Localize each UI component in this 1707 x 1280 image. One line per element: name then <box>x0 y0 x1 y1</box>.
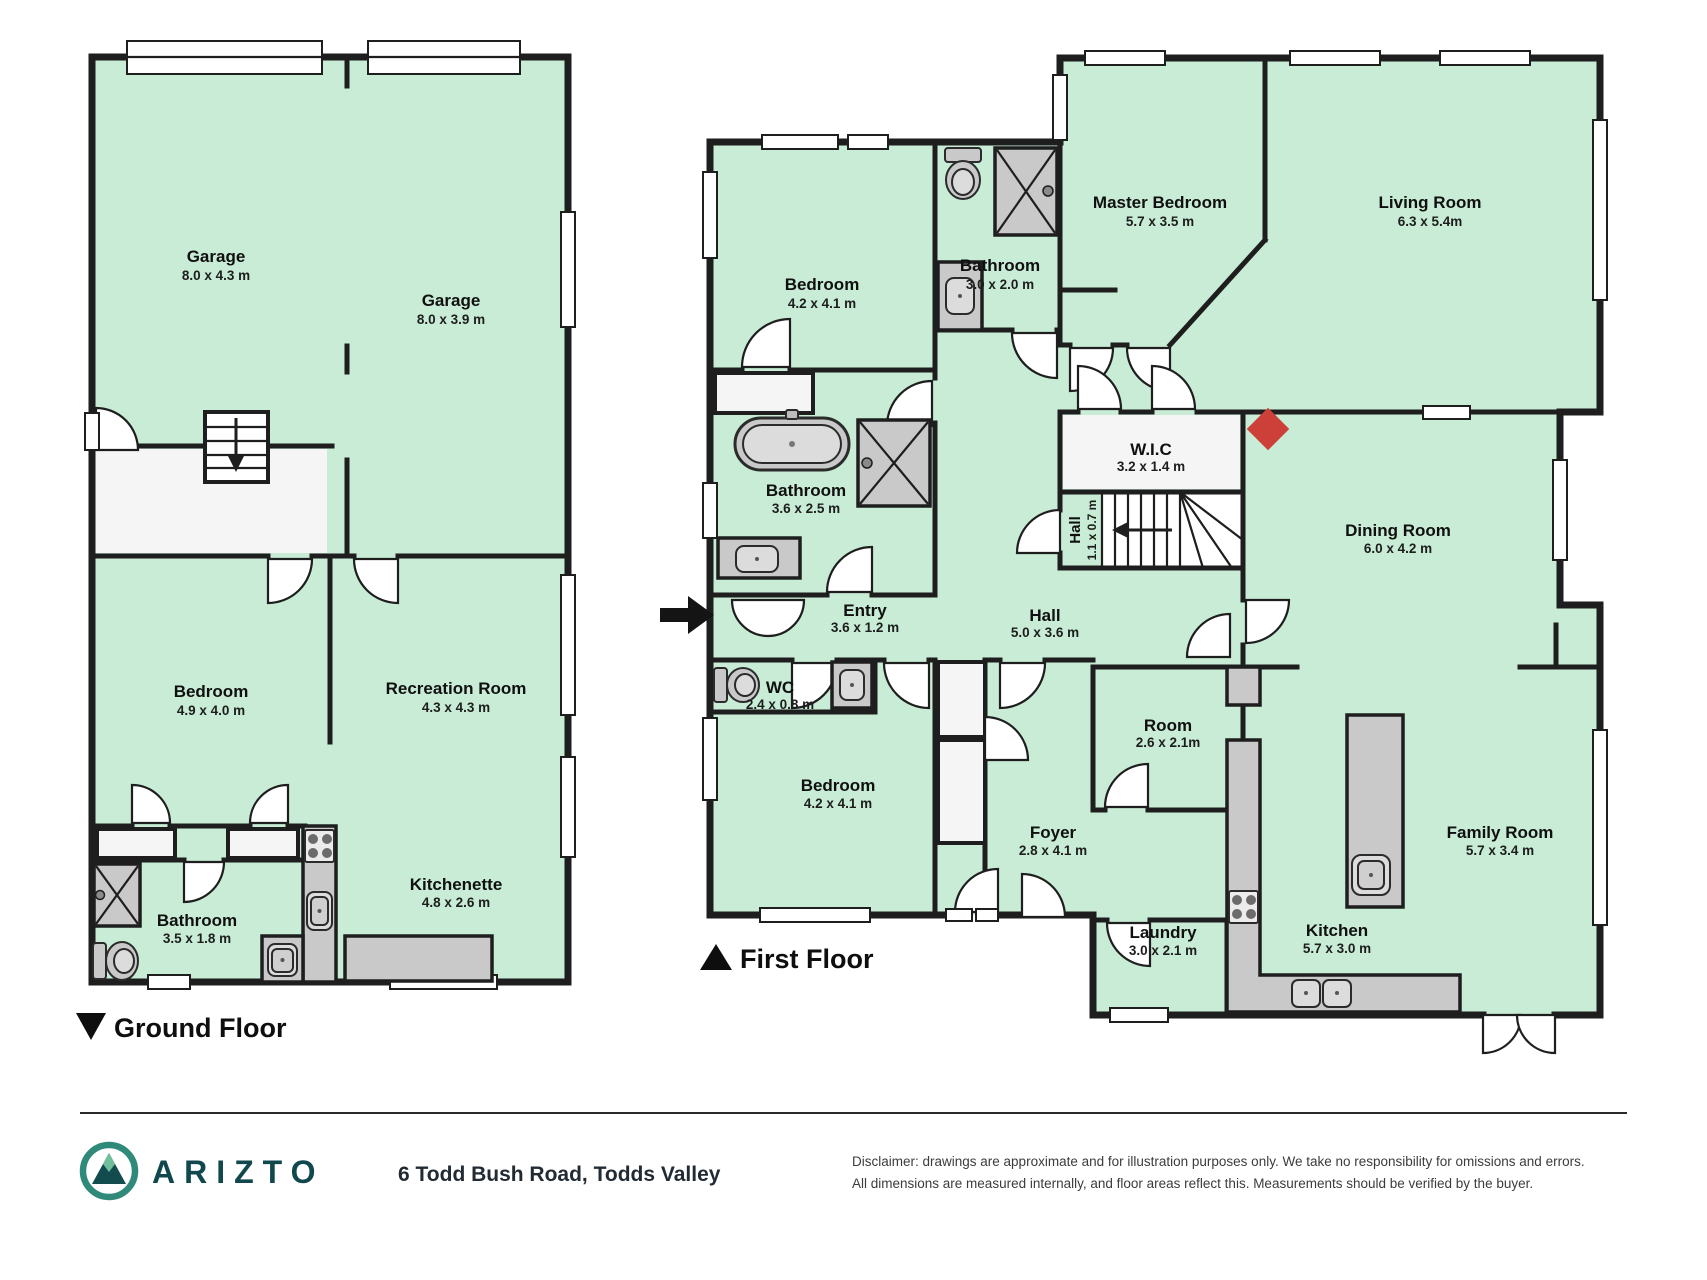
room-label-kitchenette: Kitchenette 4.8 x 2.6 m <box>410 875 503 910</box>
svg-text:Bedroom: Bedroom <box>174 682 249 701</box>
svg-text:1.1 x 0.7 m: 1.1 x 0.7 m <box>1085 500 1099 561</box>
svg-text:2.4 x 0.8 m: 2.4 x 0.8 m <box>746 697 814 712</box>
svg-text:Entry: Entry <box>843 601 887 620</box>
svg-text:Bathroom: Bathroom <box>157 911 237 930</box>
svg-text:Room: Room <box>1144 716 1192 735</box>
svg-text:Hall: Hall <box>1029 606 1060 625</box>
svg-text:W.I.C: W.I.C <box>1130 440 1172 459</box>
french-door-icon <box>1517 1015 1555 1053</box>
svg-text:3.0 x 2.1 m: 3.0 x 2.1 m <box>1129 943 1197 958</box>
svg-text:4.8 x 2.6 m: 4.8 x 2.6 m <box>422 895 490 910</box>
shower-icon <box>94 864 140 926</box>
closet <box>97 829 175 858</box>
floor-plan-page: Garage 8.0 x 4.3 m Garage 8.0 x 3.9 m Be… <box>0 0 1707 1280</box>
svg-text:Laundry: Laundry <box>1129 923 1197 942</box>
closet <box>715 373 813 413</box>
svg-text:3.0 x 2.0 m: 3.0 x 2.0 m <box>966 277 1034 292</box>
svg-text:Family Room: Family Room <box>1447 823 1554 842</box>
stairs-down-icon <box>205 412 268 482</box>
ground-floor-title: Ground Floor <box>76 1013 287 1043</box>
arizto-logo-icon <box>83 1145 135 1197</box>
svg-text:Bathroom: Bathroom <box>960 256 1040 275</box>
room-label-garage-1: Garage 8.0 x 4.3 m <box>182 247 250 283</box>
entry-arrow-icon <box>660 596 714 634</box>
svg-text:Hall: Hall <box>1067 516 1084 544</box>
brand-name: ARIZTO <box>152 1154 325 1190</box>
svg-text:Dining Room: Dining Room <box>1345 521 1451 540</box>
svg-text:4.2 x 4.1 m: 4.2 x 4.1 m <box>804 796 872 811</box>
footer: ARIZTO 6 Todd Bush Road, Todds Valley Di… <box>80 1113 1627 1197</box>
bathtub-icon <box>735 410 849 470</box>
sink-icon <box>832 662 872 708</box>
sink-icon <box>718 538 800 578</box>
svg-text:6.3 x 5.4m: 6.3 x 5.4m <box>1398 214 1463 229</box>
room-label-laundry: Laundry 3.0 x 2.1 m <box>1129 923 1197 958</box>
ground-floor-plan: Garage 8.0 x 4.3 m Garage 8.0 x 3.9 m Be… <box>76 41 575 1043</box>
svg-text:5.7 x 3.4 m: 5.7 x 3.4 m <box>1466 843 1534 858</box>
disclaimer-line-1: Disclaimer: drawings are approximate and… <box>852 1154 1585 1169</box>
toilet-icon <box>93 942 138 980</box>
svg-text:2.6 x 2.1m: 2.6 x 2.1m <box>1136 735 1201 750</box>
room-label-bathroom-main: Bathroom 3.6 x 2.5 m <box>766 481 846 516</box>
room-label-kitchen: Kitchen 5.7 x 3.0 m <box>1303 921 1371 956</box>
svg-text:4.2 x 4.1 m: 4.2 x 4.1 m <box>788 296 856 311</box>
svg-text:Garage: Garage <box>187 247 246 266</box>
french-door-icon <box>1483 1015 1521 1053</box>
svg-text:First Floor: First Floor <box>740 944 874 974</box>
room-label-bathroom-small: Bathroom 3.0 x 2.0 m <box>960 256 1040 292</box>
svg-text:8.0 x 4.3 m: 8.0 x 4.3 m <box>182 268 250 283</box>
svg-text:4.3 x 4.3 m: 4.3 x 4.3 m <box>422 700 490 715</box>
room-label-room: Room 2.6 x 2.1m <box>1136 716 1201 750</box>
svg-text:WC: WC <box>766 678 794 697</box>
disclaimer-line-2: All dimensions are measured internally, … <box>852 1176 1533 1191</box>
svg-text:5.7 x 3.5 m: 5.7 x 3.5 m <box>1126 214 1194 229</box>
svg-text:Foyer: Foyer <box>1030 823 1077 842</box>
stove-icon <box>305 830 334 862</box>
svg-text:5.7 x 3.0 m: 5.7 x 3.0 m <box>1303 941 1371 956</box>
up-triangle-icon <box>700 944 732 970</box>
svg-text:8.0 x 3.9 m: 8.0 x 3.9 m <box>417 312 485 327</box>
svg-text:3.6 x 1.2 m: 3.6 x 1.2 m <box>831 620 899 635</box>
svg-text:3.2 x 1.4 m: 3.2 x 1.4 m <box>1117 459 1185 474</box>
room-label-garage-2: Garage 8.0 x 3.9 m <box>417 291 485 327</box>
svg-text:Bedroom: Bedroom <box>801 776 876 795</box>
svg-text:2.8 x 4.1 m: 2.8 x 4.1 m <box>1019 843 1087 858</box>
svg-text:Ground Floor: Ground Floor <box>114 1013 287 1043</box>
svg-text:6.0 x 4.2 m: 6.0 x 4.2 m <box>1364 541 1432 556</box>
svg-text:Recreation Room: Recreation Room <box>386 679 527 698</box>
first-floor-title: First Floor <box>700 944 874 974</box>
shower-icon <box>995 148 1057 235</box>
svg-text:Master Bedroom: Master Bedroom <box>1093 193 1227 212</box>
down-triangle-icon <box>76 1013 106 1040</box>
closet <box>228 829 298 858</box>
room-label-bathroom-ground: Bathroom 3.5 x 1.8 m <box>157 911 237 946</box>
svg-text:3.6 x 2.5 m: 3.6 x 2.5 m <box>772 501 840 516</box>
room-label-bedroom-2: Bedroom 4.2 x 4.1 m <box>801 776 876 811</box>
property-address: 6 Todd Bush Road, Todds Valley <box>398 1163 721 1186</box>
svg-text:Kitchen: Kitchen <box>1306 921 1368 940</box>
svg-text:Living Room: Living Room <box>1379 193 1482 212</box>
svg-text:5.0 x 3.6 m: 5.0 x 3.6 m <box>1011 625 1079 640</box>
floor-plan-canvas: Garage 8.0 x 4.3 m Garage 8.0 x 3.9 m Be… <box>0 0 1707 1280</box>
room-label-bedroom-ground: Bedroom 4.9 x 4.0 m <box>174 682 249 718</box>
svg-text:4.9 x 4.0 m: 4.9 x 4.0 m <box>177 703 245 718</box>
shower-icon <box>858 420 930 506</box>
closet <box>938 740 985 843</box>
first-floor-plan: Bedroom 4.2 x 4.1 m Bathroom 3.0 x 2.0 m… <box>660 51 1607 1053</box>
svg-text:3.5 x 1.8 m: 3.5 x 1.8 m <box>163 931 231 946</box>
svg-text:Bathroom: Bathroom <box>766 481 846 500</box>
stove-icon <box>1229 891 1258 923</box>
toilet-icon <box>945 148 981 199</box>
svg-text:Garage: Garage <box>422 291 481 310</box>
svg-text:Kitchenette: Kitchenette <box>410 875 503 894</box>
svg-text:Bedroom: Bedroom <box>785 275 860 294</box>
closet <box>938 662 985 737</box>
room-label-bedroom-1: Bedroom 4.2 x 4.1 m <box>785 275 860 311</box>
